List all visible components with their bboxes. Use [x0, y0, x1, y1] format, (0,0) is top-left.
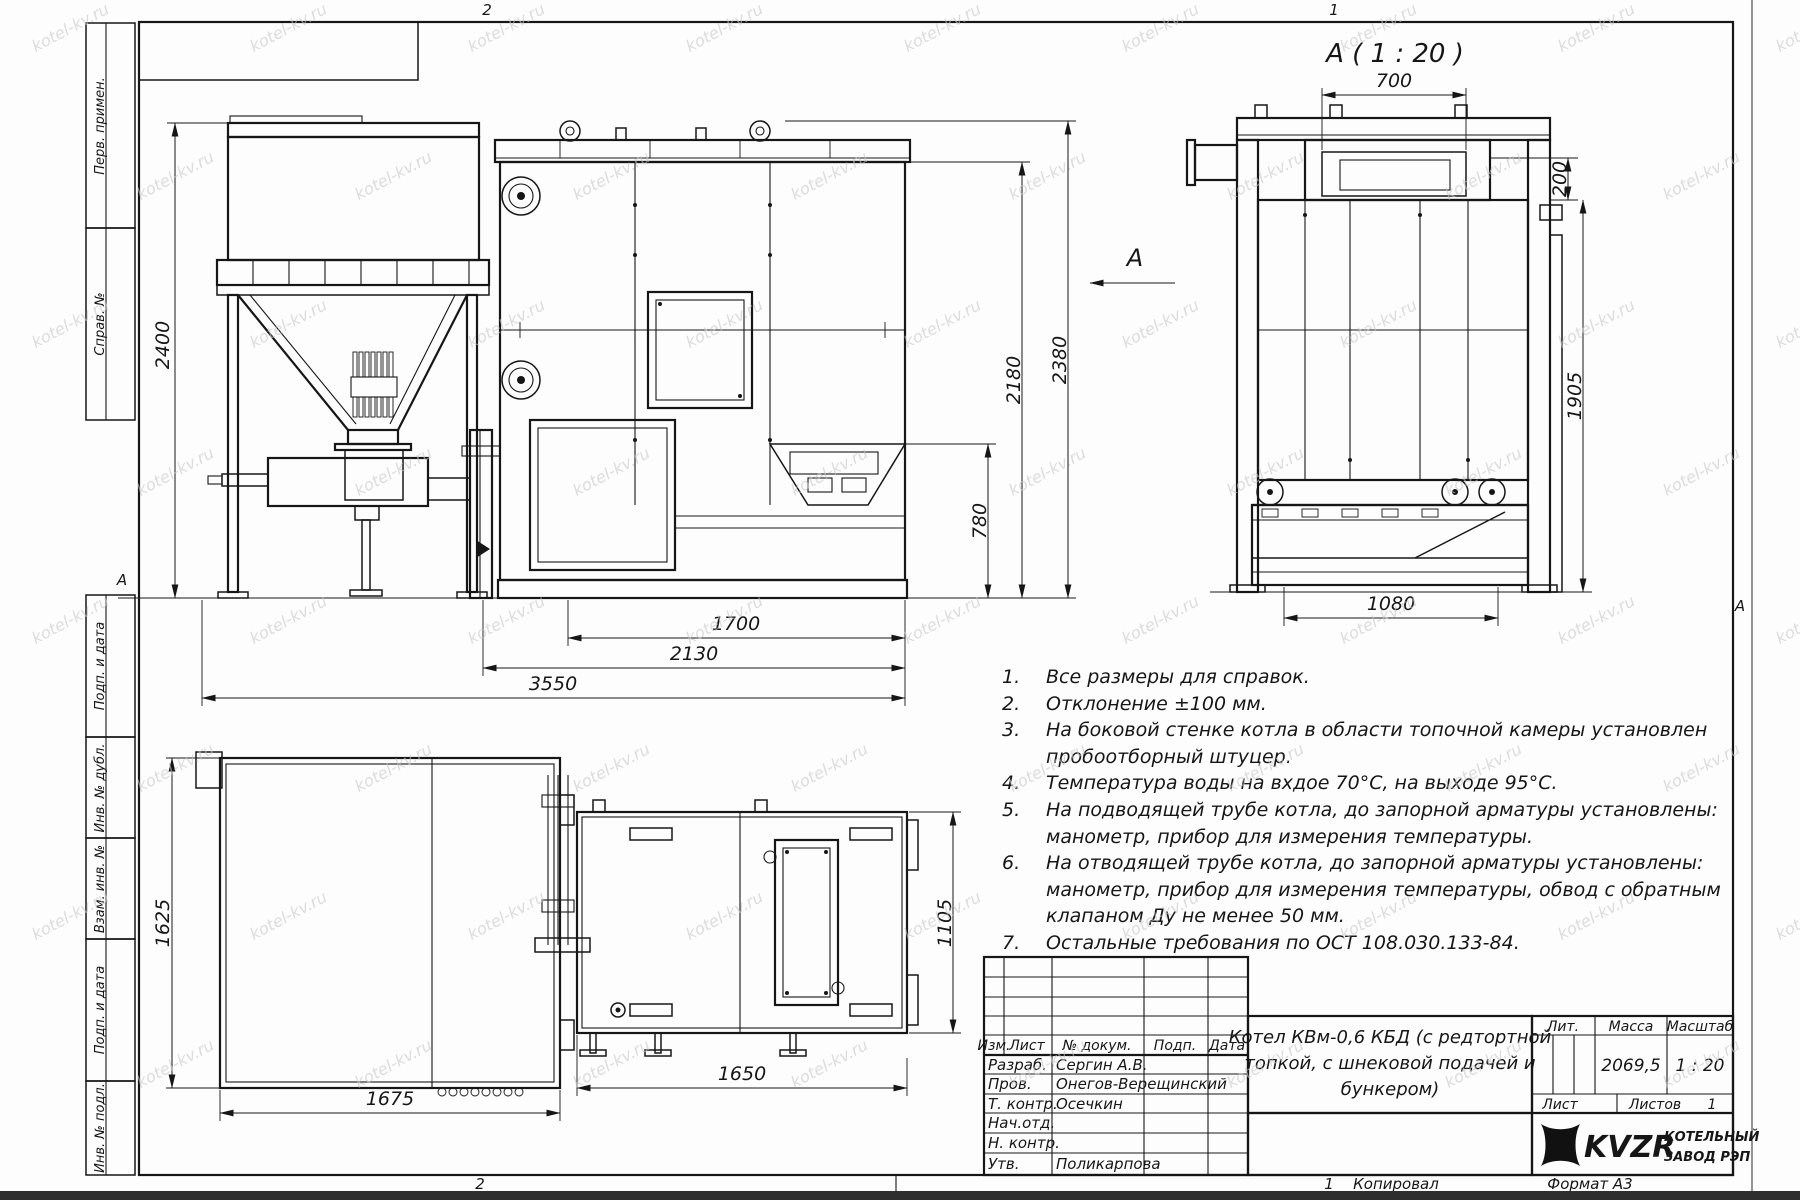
note-line: клапаном Ду не менее 50 мм. [1002, 905, 1772, 932]
sidebar-item-inv-dubl: Инв. № дубл. [93, 744, 108, 833]
svg-text:А: А [1125, 244, 1143, 272]
note-line: манометр, прибор для измерения температу… [1002, 826, 1772, 853]
note-line: 7.Остальные требования по ОСТ 108.030.13… [1002, 932, 1772, 959]
dimension-1105: 1105 [909, 812, 961, 1033]
svg-text:1905: 1905 [1564, 372, 1586, 420]
svg-text:1105: 1105 [934, 899, 956, 947]
front-view: 2400 780 2180 2380 1700 2130 3550 А [118, 116, 1175, 706]
screw-feeder [208, 450, 470, 596]
view-arrow-A: А [1090, 244, 1175, 283]
drawing-sheet: 2 1 2 1 Копировал Формат А3 А А Перв. пр… [0, 0, 1800, 1200]
svg-text:2130: 2130 [670, 643, 718, 665]
svg-text:1700: 1700 [712, 613, 760, 635]
tb-col-izm: Изм. [978, 1038, 1011, 1054]
dimension-1080: 1080 [1284, 587, 1498, 626]
svg-text:700: 700 [1376, 70, 1412, 92]
boiler-plan-view: 1650 1105 [577, 800, 961, 1096]
note-line: 3.На боковой стенке котла в области топо… [1002, 719, 1772, 746]
dimension-3550: 3550 [202, 600, 905, 706]
dimension-780: 780 [905, 444, 996, 598]
drawing-canvas: 2 1 2 1 Копировал Формат А3 А А Перв. пр… [0, 0, 1800, 1200]
sidebar-item-inv-podl: Инв. № подл. [93, 1083, 108, 1173]
sheets-label: Листов [1628, 1097, 1681, 1113]
svg-text:780: 780 [969, 503, 991, 539]
dimension-1625: 1625 [152, 758, 220, 1088]
note-line: 6.На отводящей трубе котла, до запорной … [1002, 852, 1772, 879]
tb-row-razrab-label: Разраб. [988, 1056, 1047, 1074]
dimension-1650: 1650 [577, 1035, 907, 1096]
boiler-front [495, 121, 910, 598]
svg-text:2380: 2380 [1049, 336, 1071, 384]
sidebar-item-sprav-no: Справ. № [93, 292, 108, 355]
notes-block: 1.Все размеры для справок. 2.Отклонение … [1002, 666, 1772, 959]
auger-spiral [351, 352, 397, 417]
tb-row-tkontr-name: Осечкин [1056, 1095, 1123, 1113]
svg-text:2400: 2400 [152, 321, 174, 369]
dimension-1675: 1675 [220, 1088, 560, 1121]
zone-right-A: А [1734, 597, 1745, 615]
tb-col-list: Лист [1008, 1038, 1045, 1054]
bunker-plan-view: 1625 1675 [152, 752, 590, 1121]
doc-title-line3: бункером) [1341, 1079, 1440, 1100]
sheets-value: 1 [1708, 1097, 1717, 1113]
dimension-2380: 2380 [785, 121, 1076, 598]
svg-text:1650: 1650 [718, 1063, 766, 1085]
title-block: Изм. Лист № докум. Подп. Дата Разраб. Се… [978, 957, 1760, 1175]
zone-top-right: 1 [1329, 1, 1339, 19]
doc-title-line1: Котел КВм-0,6 КБД (с редтортной [1229, 1027, 1552, 1048]
bottom-edge-bar [0, 1191, 1800, 1200]
org-name-line1: КОТЕЛЬНЫЙ [1664, 1129, 1759, 1145]
dimension-2400: 2400 [152, 123, 228, 598]
svg-text:1625: 1625 [152, 899, 174, 947]
sidebar-item-podp-data-1: Подп. и дата [93, 622, 108, 711]
section-view: А ( 1 : 20 ) 700 200 [1187, 39, 1592, 626]
scale-label: Масштаб [1667, 1019, 1734, 1035]
org-name-line2: ЗАВОД РЭП [1664, 1150, 1750, 1165]
kvzr-logo: KVZR КОТЕЛЬНЫЙ ЗАВОД РЭП [1541, 1124, 1759, 1166]
tb-row-prov-label: Пров. [988, 1075, 1032, 1093]
massa-value: 2069,5 [1601, 1056, 1660, 1076]
first-use-stamp-box [139, 22, 418, 80]
dimension-1905: 1905 [1548, 200, 1592, 592]
note-line: пробоотборный штуцер. [1002, 746, 1772, 773]
note-line: 2.Отклонение ±100 мм. [1002, 693, 1772, 720]
tb-row-utv-label: Утв. [988, 1155, 1020, 1173]
kvzr-logo-text: KVZR [1584, 1130, 1675, 1165]
note-line: 4.Температура воды на вхдое 70°С, на вых… [1002, 772, 1772, 799]
note-line: манометр, прибор для измерения температу… [1002, 879, 1772, 906]
svg-text:1675: 1675 [366, 1088, 414, 1110]
dimension-700: 700 [1322, 70, 1466, 150]
tb-col-podp: Подп. [1154, 1038, 1196, 1054]
kvzr-logo-glyph [1541, 1124, 1580, 1166]
svg-text:2180: 2180 [1003, 356, 1025, 404]
flow-arrow-mark [476, 540, 490, 558]
sidebar-column: Перв. примен. Справ. № Подп. и дата Инв.… [86, 23, 135, 1175]
svg-text:3550: 3550 [529, 673, 577, 695]
dimension-1700: 1700 [568, 600, 905, 706]
svg-text:200: 200 [1549, 161, 1571, 197]
lit-label: Лит. [1546, 1019, 1579, 1035]
zone-top-left: 2 [482, 1, 492, 19]
tb-row-tkontr-label: Т. контр. [988, 1095, 1058, 1113]
tb-row-razrab-name: Сергин А.В. [1056, 1056, 1148, 1074]
tb-row-utv-name: Поликарпова [1056, 1155, 1161, 1173]
sidebar-item-perv-primen: Перв. примен. [93, 77, 108, 175]
fire-door [648, 292, 752, 408]
massa-label: Масса [1609, 1019, 1654, 1035]
dimension-200: 200 [1490, 158, 1578, 200]
doc-title-line2: топкой, с шнековой подачей и [1244, 1053, 1536, 1074]
svg-text:1080: 1080 [1367, 593, 1415, 615]
tb-row-nachotd-label: Нач.отд. [988, 1114, 1055, 1132]
sheet-label: Лист [1541, 1097, 1578, 1113]
scale-value: 1 : 20 [1676, 1056, 1725, 1076]
note-line: 5.На подводящей трубе котла, до запорной… [1002, 799, 1772, 826]
tb-row-prov-name: Онегов-Верещинский [1056, 1075, 1227, 1093]
zone-left-A: А [116, 571, 127, 589]
sidebar-item-vzam-inv: Взам. инв. № [93, 845, 108, 933]
note-line: 1.Все размеры для справок. [1002, 666, 1772, 693]
ash-door [530, 420, 675, 570]
tb-col-doc: № докум. [1061, 1038, 1131, 1054]
section-title: А ( 1 : 20 ) [1324, 39, 1464, 69]
tb-row-nkontr-label: Н. контр. [988, 1134, 1060, 1152]
sidebar-item-podp-data-2: Подп. и дата [93, 966, 108, 1055]
